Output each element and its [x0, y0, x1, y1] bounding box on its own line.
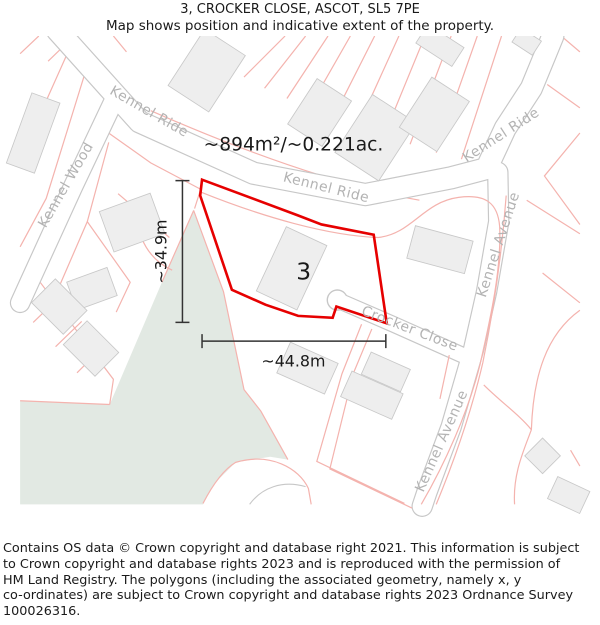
- building: [6, 93, 60, 173]
- street-label-crocker-close: Crocker Close: [359, 303, 460, 354]
- building: [63, 321, 118, 376]
- copyright-line: Contains OS data © Crown copyright and d…: [3, 541, 600, 557]
- copyright-line: HM Land Registry. The polygons (includin…: [3, 573, 600, 589]
- width-dimension-label: ~44.8m: [261, 351, 325, 370]
- copyright-line: co-ordinates) are subject to Crown copyr…: [3, 588, 600, 604]
- area-label: ~894m²/~0.221ac.: [204, 135, 384, 156]
- page-subtitle: Map shows position and indicative extent…: [0, 18, 600, 34]
- map-canvas: ~34.9m ~44.8m ~894m²/~0.221ac. 3 Kennel …: [0, 36, 600, 537]
- height-dimension-label: ~34.9m: [152, 219, 171, 283]
- track-edge: [250, 484, 306, 504]
- building: [168, 36, 245, 112]
- page: 3, CROCKER CLOSE, ASCOT, SL5 7PE Map sho…: [0, 0, 600, 625]
- map: ~34.9m ~44.8m ~894m²/~0.221ac. 3 Kennel …: [0, 36, 600, 537]
- plot-number-label: 3: [296, 259, 311, 286]
- street-label-kennel-ride-2: Kennel Ride: [282, 170, 371, 207]
- page-title: 3, CROCKER CLOSE, ASCOT, SL5 7PE: [0, 2, 600, 18]
- copyright-line: to Crown copyright and database rights 2…: [3, 557, 600, 573]
- header: 3, CROCKER CLOSE, ASCOT, SL5 7PE Map sho…: [0, 0, 600, 34]
- building: [525, 438, 561, 474]
- property-building: [256, 227, 327, 310]
- building: [407, 226, 473, 274]
- building: [416, 36, 464, 66]
- building: [548, 477, 590, 514]
- copyright-line: 100026316.: [3, 604, 600, 620]
- copyright-notice: Contains OS data © Crown copyright and d…: [3, 541, 600, 620]
